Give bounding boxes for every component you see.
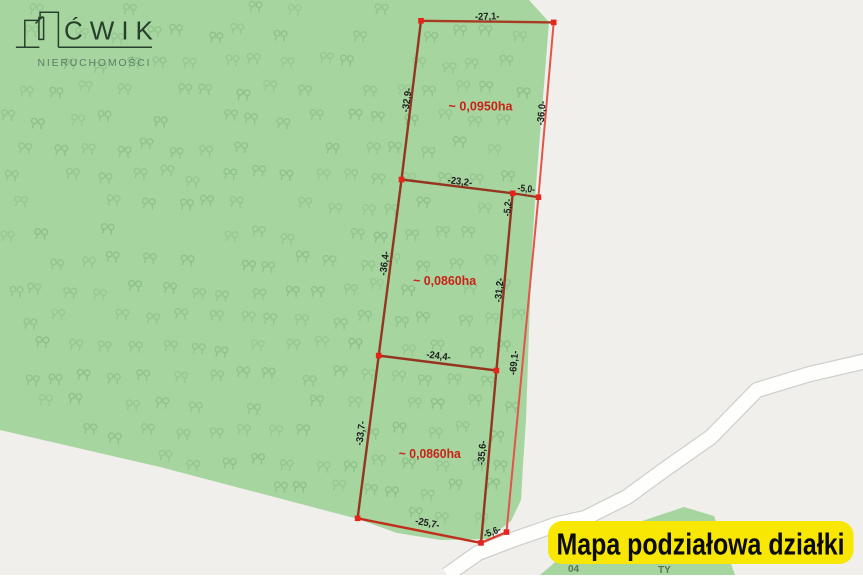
svg-text:TY: TY bbox=[658, 565, 671, 575]
svg-text:~ 0,0860ha: ~ 0,0860ha bbox=[399, 447, 462, 461]
svg-text:-5,2-: -5,2- bbox=[502, 198, 515, 216]
svg-text:-27,1-: -27,1- bbox=[475, 11, 500, 23]
svg-text:-5,0-: -5,0- bbox=[517, 183, 536, 196]
svg-text:-35,6-: -35,6- bbox=[476, 440, 489, 465]
svg-text:Mapa podziałowa działki: Mapa podziałowa działki bbox=[557, 527, 845, 562]
svg-text:ĆWIK: ĆWIK bbox=[64, 16, 160, 46]
svg-text:~ 0,0860ha: ~ 0,0860ha bbox=[413, 274, 477, 288]
svg-text:NIERUCHOMOŚCI: NIERUCHOMOŚCI bbox=[38, 56, 152, 69]
svg-text:-69,1-: -69,1- bbox=[508, 350, 521, 375]
svg-text:04: 04 bbox=[568, 564, 580, 575]
svg-text:~ 0,0950ha: ~ 0,0950ha bbox=[449, 99, 514, 113]
svg-text:-31,2-: -31,2- bbox=[493, 277, 506, 302]
